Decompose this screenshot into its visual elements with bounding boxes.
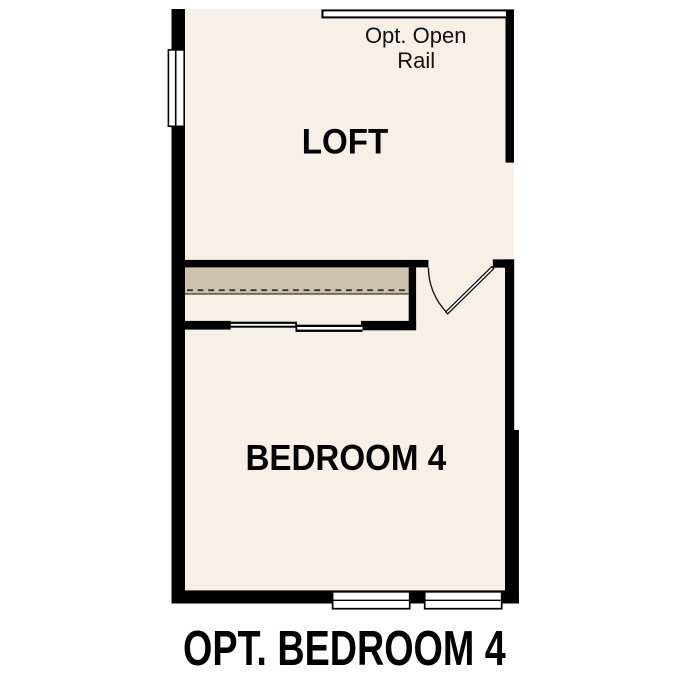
svg-text:BEDROOM 4: BEDROOM 4	[245, 439, 446, 478]
svg-text:OPT. BEDROOM 4: OPT. BEDROOM 4	[183, 623, 506, 677]
svg-text:Opt. Open: Opt. Open	[365, 23, 467, 48]
svg-text:Rail: Rail	[397, 48, 435, 73]
svg-text:LOFT: LOFT	[302, 123, 389, 162]
